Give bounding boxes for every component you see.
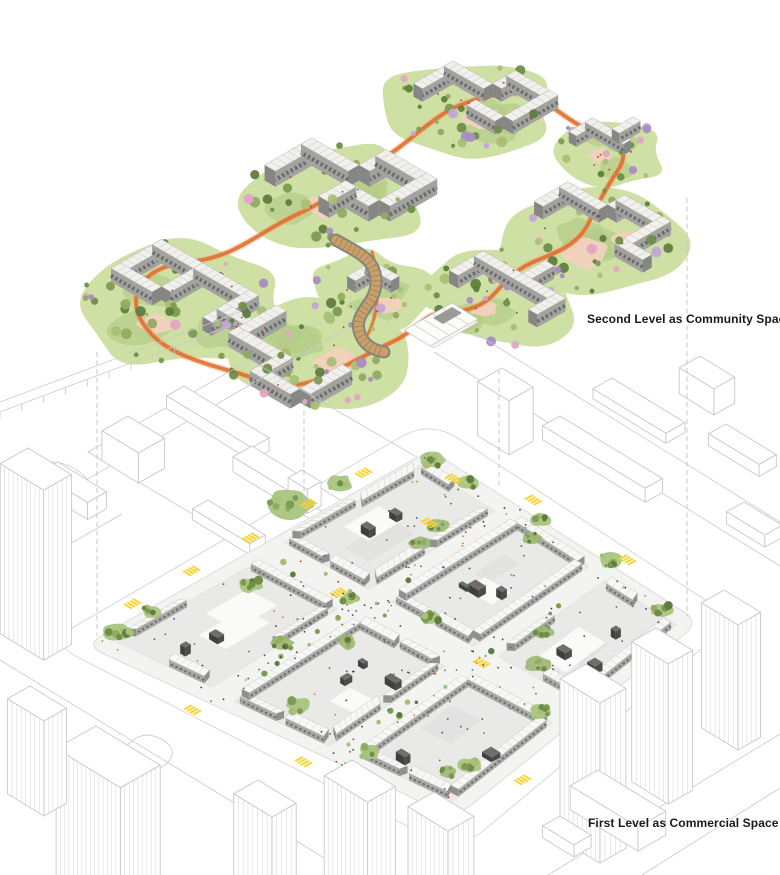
context-building <box>192 500 265 555</box>
context-building <box>102 416 165 483</box>
context-building <box>701 590 760 750</box>
first-level-label: First Level as Commercial Space <box>588 816 779 830</box>
context-building <box>0 448 71 660</box>
context-building <box>478 368 534 455</box>
context-building <box>234 780 297 875</box>
context-building <box>7 686 66 816</box>
scene-svg <box>0 0 780 875</box>
second-level-axon <box>80 61 690 410</box>
context-building <box>632 628 693 804</box>
second-level-label: Second Level as Community Space <box>587 312 780 326</box>
architectural-diagram: Second Level as Community Space First Le… <box>0 0 780 875</box>
first-level-axon <box>0 312 780 875</box>
context-building <box>679 356 735 415</box>
context-building <box>593 378 685 443</box>
context-building <box>709 424 777 477</box>
context-building <box>727 502 780 547</box>
